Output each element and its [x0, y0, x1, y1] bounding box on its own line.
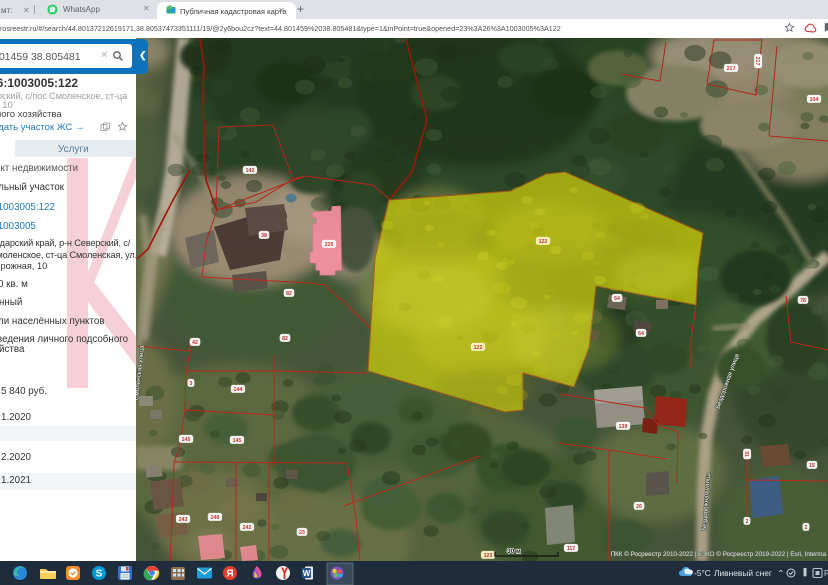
svg-text:217: 217 [754, 57, 760, 66]
svg-text:142: 142 [246, 168, 255, 174]
svg-text:Ливневый снег: Ливневый снег [714, 568, 772, 578]
svg-text:⌃: ⌃ [777, 569, 785, 579]
svg-text:S: S [96, 569, 103, 580]
svg-text:15: 15 [809, 463, 815, 469]
svg-text:122: 122 [539, 239, 548, 245]
svg-text:30 м: 30 м [507, 548, 521, 555]
svg-text:122: 122 [474, 345, 483, 351]
svg-text:82: 82 [286, 291, 292, 297]
svg-text:23: 23 [299, 530, 305, 536]
svg-text:Р: Р [824, 569, 828, 578]
svg-text:64: 64 [614, 296, 620, 302]
svg-text:217: 217 [727, 66, 736, 72]
svg-text:-5°C: -5°C [694, 568, 711, 578]
svg-text:139: 139 [619, 424, 628, 430]
svg-text:145: 145 [182, 437, 191, 443]
svg-text:38: 38 [261, 233, 267, 239]
svg-text:242: 242 [243, 525, 252, 531]
svg-text:145: 145 [233, 438, 242, 444]
svg-text:31: 31 [743, 451, 749, 457]
svg-text:104: 104 [810, 97, 819, 103]
svg-text:123: 123 [484, 553, 493, 559]
svg-text:3: 3 [190, 381, 193, 387]
svg-text:144: 144 [234, 387, 243, 393]
svg-text:82: 82 [282, 336, 288, 342]
svg-text:ПКК © Росреестр 2010-2022 | ЕЗ: ПКК © Росреестр 2010-2022 | ЕЗКО © Росре… [611, 550, 827, 558]
svg-text:26: 26 [636, 504, 642, 510]
svg-text:Я: Я [226, 569, 233, 580]
svg-text:78: 78 [800, 298, 806, 304]
svg-text:2: 2 [805, 525, 808, 531]
svg-text:64: 64 [638, 331, 644, 337]
svg-text:248: 248 [211, 515, 220, 521]
svg-text:117: 117 [567, 546, 575, 552]
svg-text:243: 243 [179, 517, 188, 523]
svg-text:W: W [303, 569, 311, 578]
svg-text:2: 2 [746, 519, 749, 525]
svg-text:220: 220 [325, 242, 334, 248]
svg-text:42: 42 [192, 340, 198, 346]
